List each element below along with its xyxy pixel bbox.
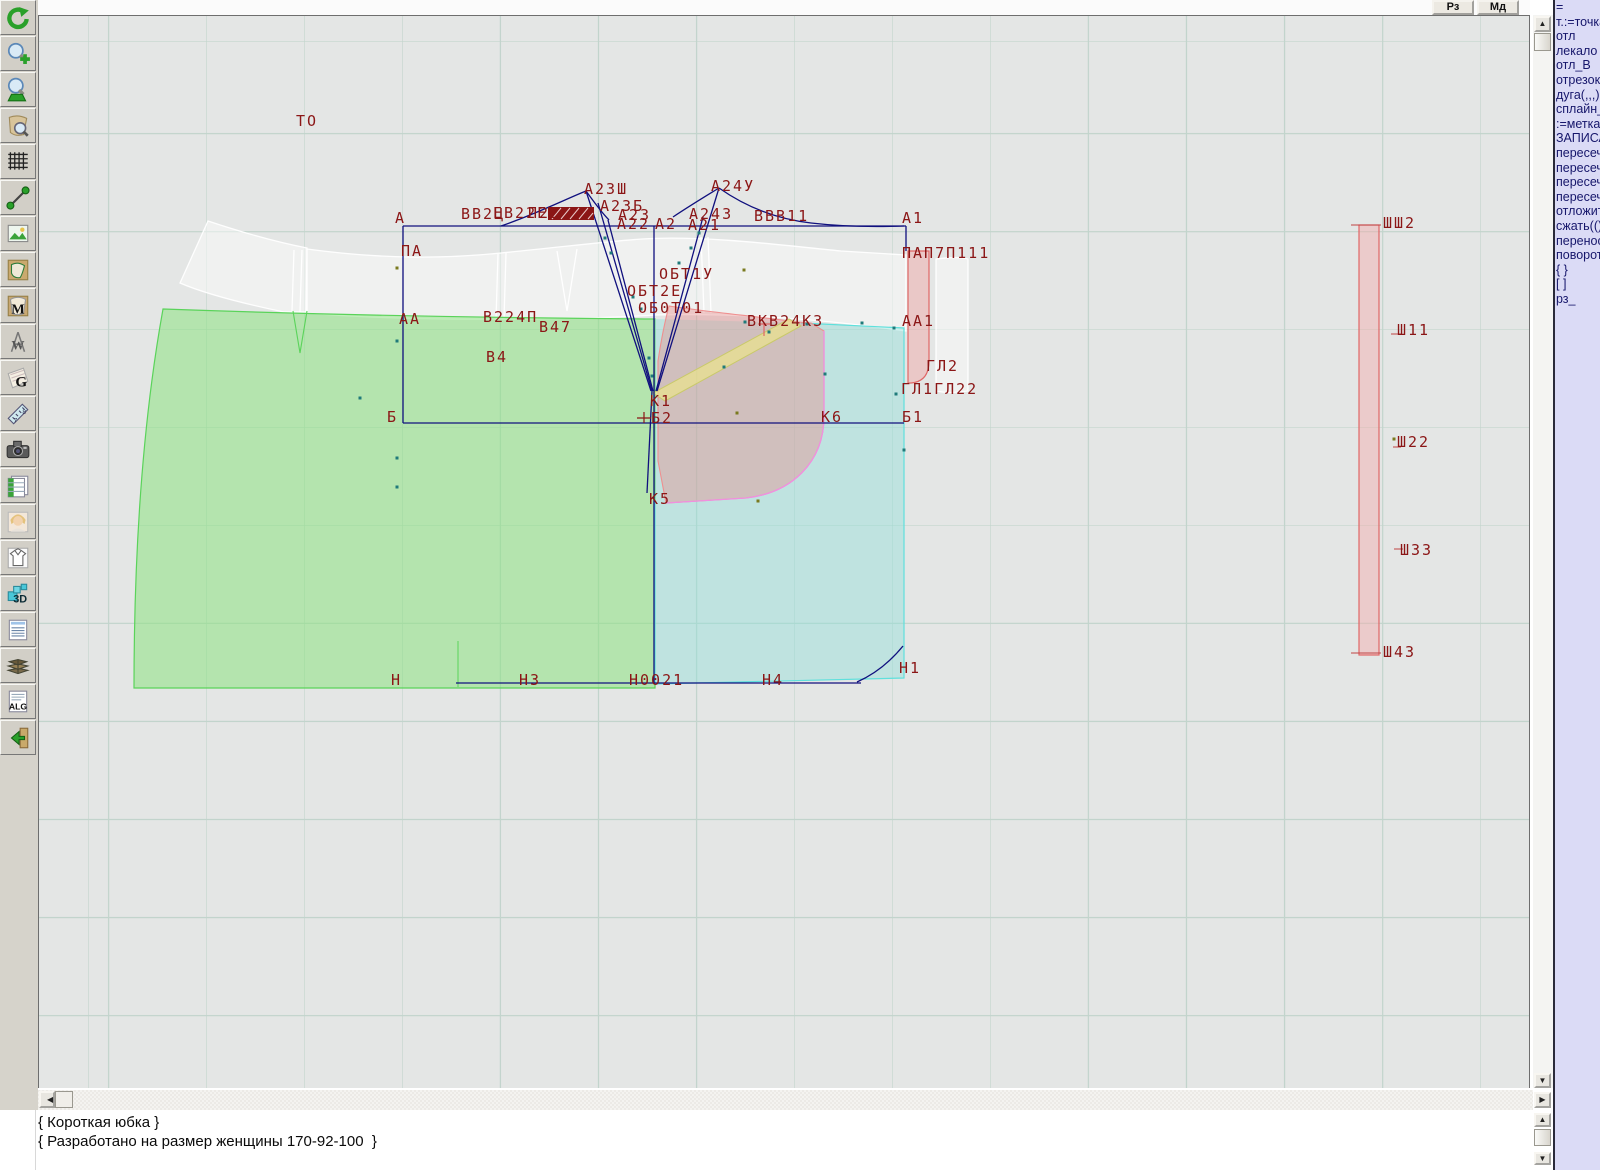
vertical-scroll-thumb[interactable] [1534,33,1551,51]
point-marker [895,393,898,396]
pattern-point-label: В4 [486,348,508,366]
zoom-in-icon [5,41,31,67]
command-item[interactable]: пересеч [1555,190,1600,205]
text-panel-gutter [35,1110,36,1170]
ruler-button[interactable]: 78 [0,396,36,431]
pattern-point-label: Б [387,408,398,426]
svg-text:ALG: ALG [9,701,28,711]
pattern-point-label: ГЛ2 [926,357,959,375]
rz-mode-button[interactable]: Рз [1432,0,1474,15]
pattern-point-label: К1 [650,392,672,410]
pattern-point-label: К6 [821,408,843,426]
pattern-point-label: ОБ0Т01 [638,299,704,317]
zoom-out-icon [5,77,31,103]
toolbar: MWG783DALG [0,0,38,1170]
svg-text:W: W [12,337,25,352]
pattern-point-label: В47 [539,318,572,336]
point-marker [723,366,726,369]
alg-icon: ALG [5,689,31,715]
pattern-point-label: ОБТ2Е [627,282,682,300]
threed-icon: 3D [5,581,31,607]
books-button[interactable] [0,648,36,683]
command-item[interactable]: перенос [1555,234,1600,249]
point-marker [604,237,607,240]
zoom-out-button[interactable] [0,72,36,107]
pattern-point-label: ОБТ1У [659,265,714,283]
segment-button[interactable] [0,180,36,215]
pocket-piece [658,306,824,503]
program-comment-line-1: { Короткая юбка } [38,1114,159,1131]
exit-button[interactable] [0,720,36,755]
point-marker [893,327,896,330]
svg-text:7: 7 [14,417,18,424]
horizontal-scrollbar[interactable]: ◀ [38,1090,1533,1110]
pattern-point-label: Ш33 [1400,541,1433,559]
pattern-point-label: ВВВ11 [754,207,809,225]
point-marker [743,269,746,272]
fabric-g-button[interactable]: G [0,360,36,395]
pattern-piece-icon [5,257,31,283]
scroll-left-button[interactable]: ◀ [39,1091,55,1108]
grid-icon [5,149,31,175]
top-bar: Рз Мд [38,0,1530,15]
point-marker [648,357,651,360]
pattern-point-label: Н0021 [629,671,684,689]
program-text-panel[interactable]: { Короткая юбка } { Разработано на разме… [0,1110,1533,1170]
compass-w-icon: W [5,329,31,355]
command-item[interactable]: дуга(,,,) [1555,88,1600,103]
svg-text:8: 8 [22,409,26,416]
svg-text:3D: 3D [13,593,27,605]
command-item[interactable]: [ ] [1555,277,1600,292]
svg-text:G: G [15,373,27,390]
portrait-button[interactable] [0,504,36,539]
command-list-panel: =т.:=точкаотллекалоотл_Вотрезокдуга(,,,)… [1553,0,1600,1170]
command-item[interactable]: отл_В [1555,58,1600,73]
pattern-point-label: А23Ш [584,180,628,198]
table-button[interactable] [0,468,36,503]
command-item[interactable]: сжать(() [1555,219,1600,234]
doc-list-button[interactable] [0,612,36,647]
pattern-point-label: Ш22 [1397,433,1430,451]
svg-text:M: M [11,301,24,317]
ruler-icon: 78 [5,401,31,427]
portrait-icon [5,509,31,535]
garment-icon [5,545,31,571]
point-marker [903,449,906,452]
log-scroll-up-button[interactable]: ▲ [1534,1113,1551,1127]
scroll-up-button[interactable]: ▲ [1534,16,1551,32]
pattern-point-label: Н3 [519,671,541,689]
refresh-button[interactable] [0,0,36,35]
image-icon [5,221,31,247]
pattern-canvas[interactable]: ТОАПАААБНН3Н0021Н4Н1ВВ2ЦЕВ22ЕП22А23ША23Б… [38,15,1530,1088]
pattern-point-label: Н1 [899,659,921,677]
pattern-point-label: П22 [528,204,561,222]
books-icon [5,653,31,679]
pattern-point-label: Ш43 [1383,643,1416,661]
fabric-g-icon: G [5,365,31,391]
skirt-back-piece [134,309,655,688]
zoom-in-button[interactable] [0,36,36,71]
command-item[interactable]: :=метка [1555,117,1600,132]
pattern-point-label: АА [399,310,421,328]
pattern-point-label: А22 [617,215,650,233]
pattern-point-label: ГЛ1ГЛ22 [901,380,978,398]
command-item[interactable]: рз_ [1555,292,1600,307]
table-icon [5,473,31,499]
pattern-point-label: В224П [483,308,538,326]
point-marker [861,322,864,325]
point-marker [396,340,399,343]
point-marker [359,397,362,400]
pattern-point-label: К5 [649,490,671,508]
pattern-point-label: А2 [655,215,677,233]
pattern-point-label: Н [391,671,402,689]
camera-icon [5,437,31,463]
pattern-point-label: Н4 [762,671,784,689]
program-comment-line-2: { Разработано на размер женщины 170-92-1… [38,1133,377,1150]
point-marker [610,252,613,255]
leko-pattern-cad-window: MWG783DALG Рз Мд [0,0,1600,1170]
refresh-icon [5,5,31,31]
point-marker [757,500,760,503]
compass-w-button[interactable]: W [0,324,36,359]
pattern-point-label: ТО [296,112,318,130]
scroll-right-button[interactable]: ▶ [1534,1092,1551,1108]
pattern-point-label: А1 [902,209,924,227]
command-item[interactable]: поворот [1555,248,1600,263]
command-item[interactable]: сплайн_ [1555,102,1600,117]
point-marker [396,457,399,460]
scroll-down-button[interactable]: ▼ [1534,1073,1551,1088]
alg-button[interactable]: ALG [0,684,36,719]
log-scroll-thumb[interactable] [1534,1129,1551,1146]
command-item[interactable]: { } [1555,263,1600,278]
pattern-point-label: Ш11 [1397,321,1430,339]
point-marker [690,247,693,250]
point-marker [736,412,739,415]
pattern-point-label: А24У [711,177,755,195]
zoom-piece-button[interactable] [0,108,36,143]
pattern-point-label: ВКВ24К3 [747,312,824,330]
horizontal-scroll-thumb[interactable] [55,1091,73,1108]
vertical-scrollbar-track[interactable] [1533,15,1553,1088]
pattern-point-label: Б2 [651,409,673,427]
pattern-point-label: ПА [401,242,423,260]
point-marker [396,267,399,270]
command-item[interactable]: отложит [1555,204,1600,219]
point-marker [1393,438,1396,441]
camera-button[interactable] [0,432,36,467]
log-scroll-down-button[interactable]: ▼ [1534,1152,1551,1165]
pattern-point-label: А [395,209,406,227]
scroll-column: ▲ ▼ ▶ ▲ ▼ [1533,15,1553,1170]
pattern-point-label: ПАП7П111 [902,244,990,262]
garment-button[interactable] [0,540,36,575]
pattern-drawing: ТОАПАААБНН3Н0021Н4Н1ВВ2ЦЕВ22ЕП22А23ША23Б… [39,16,1531,1089]
pattern-m-icon: M [5,293,31,319]
command-item[interactable]: отл [1555,29,1600,44]
image-button[interactable] [0,216,36,251]
pattern-point-label: А21 [688,216,721,234]
command-item[interactable]: ЗАПИСА [1555,131,1600,146]
command-item[interactable]: = [1555,0,1600,15]
grid-button[interactable] [0,144,36,179]
threed-button[interactable]: 3D [0,576,36,611]
command-item[interactable]: пересеч [1555,161,1600,176]
pattern-point-label: АА1 [902,312,935,330]
zoom-piece-icon [5,113,31,139]
point-marker [651,375,654,378]
command-item[interactable]: лекало [1555,44,1600,59]
doc-list-icon [5,617,31,643]
point-marker [768,331,771,334]
command-item[interactable]: пересеч [1555,146,1600,161]
point-marker [824,373,827,376]
pattern-point-label: Б1 [902,408,924,426]
segment-icon [5,185,31,211]
pattern-point-label: ШШ2 [1383,214,1416,232]
point-marker [396,486,399,489]
command-item[interactable]: отрезок [1555,73,1600,88]
pattern-m-button[interactable]: M [0,288,36,323]
md-mode-button[interactable]: Мд [1477,0,1519,15]
command-item[interactable]: пересеч [1555,175,1600,190]
command-item[interactable]: т.:=точка [1555,15,1600,30]
pattern-piece-button[interactable] [0,252,36,287]
exit-icon [5,725,31,751]
